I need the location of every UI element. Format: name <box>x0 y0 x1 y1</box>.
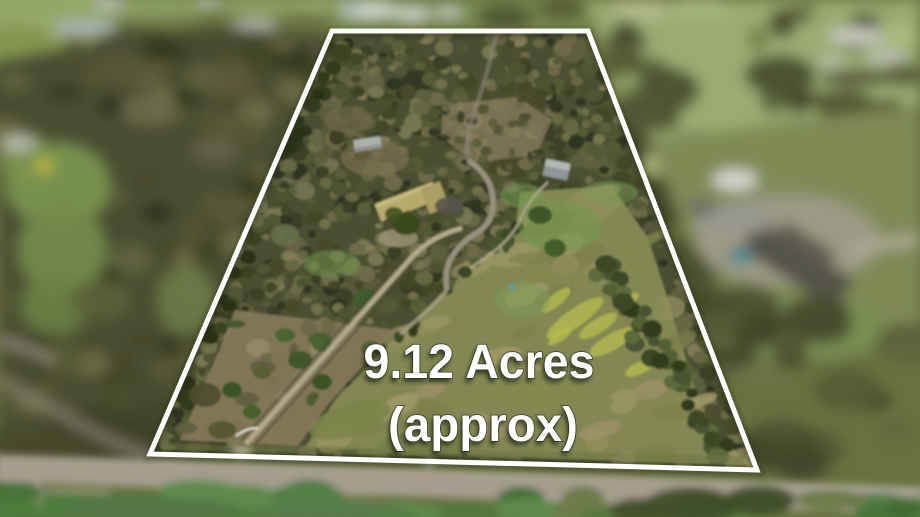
svg-text:(approx): (approx) <box>388 399 578 452</box>
svg-text:9.12 Acres: 9.12 Acres <box>364 336 595 389</box>
